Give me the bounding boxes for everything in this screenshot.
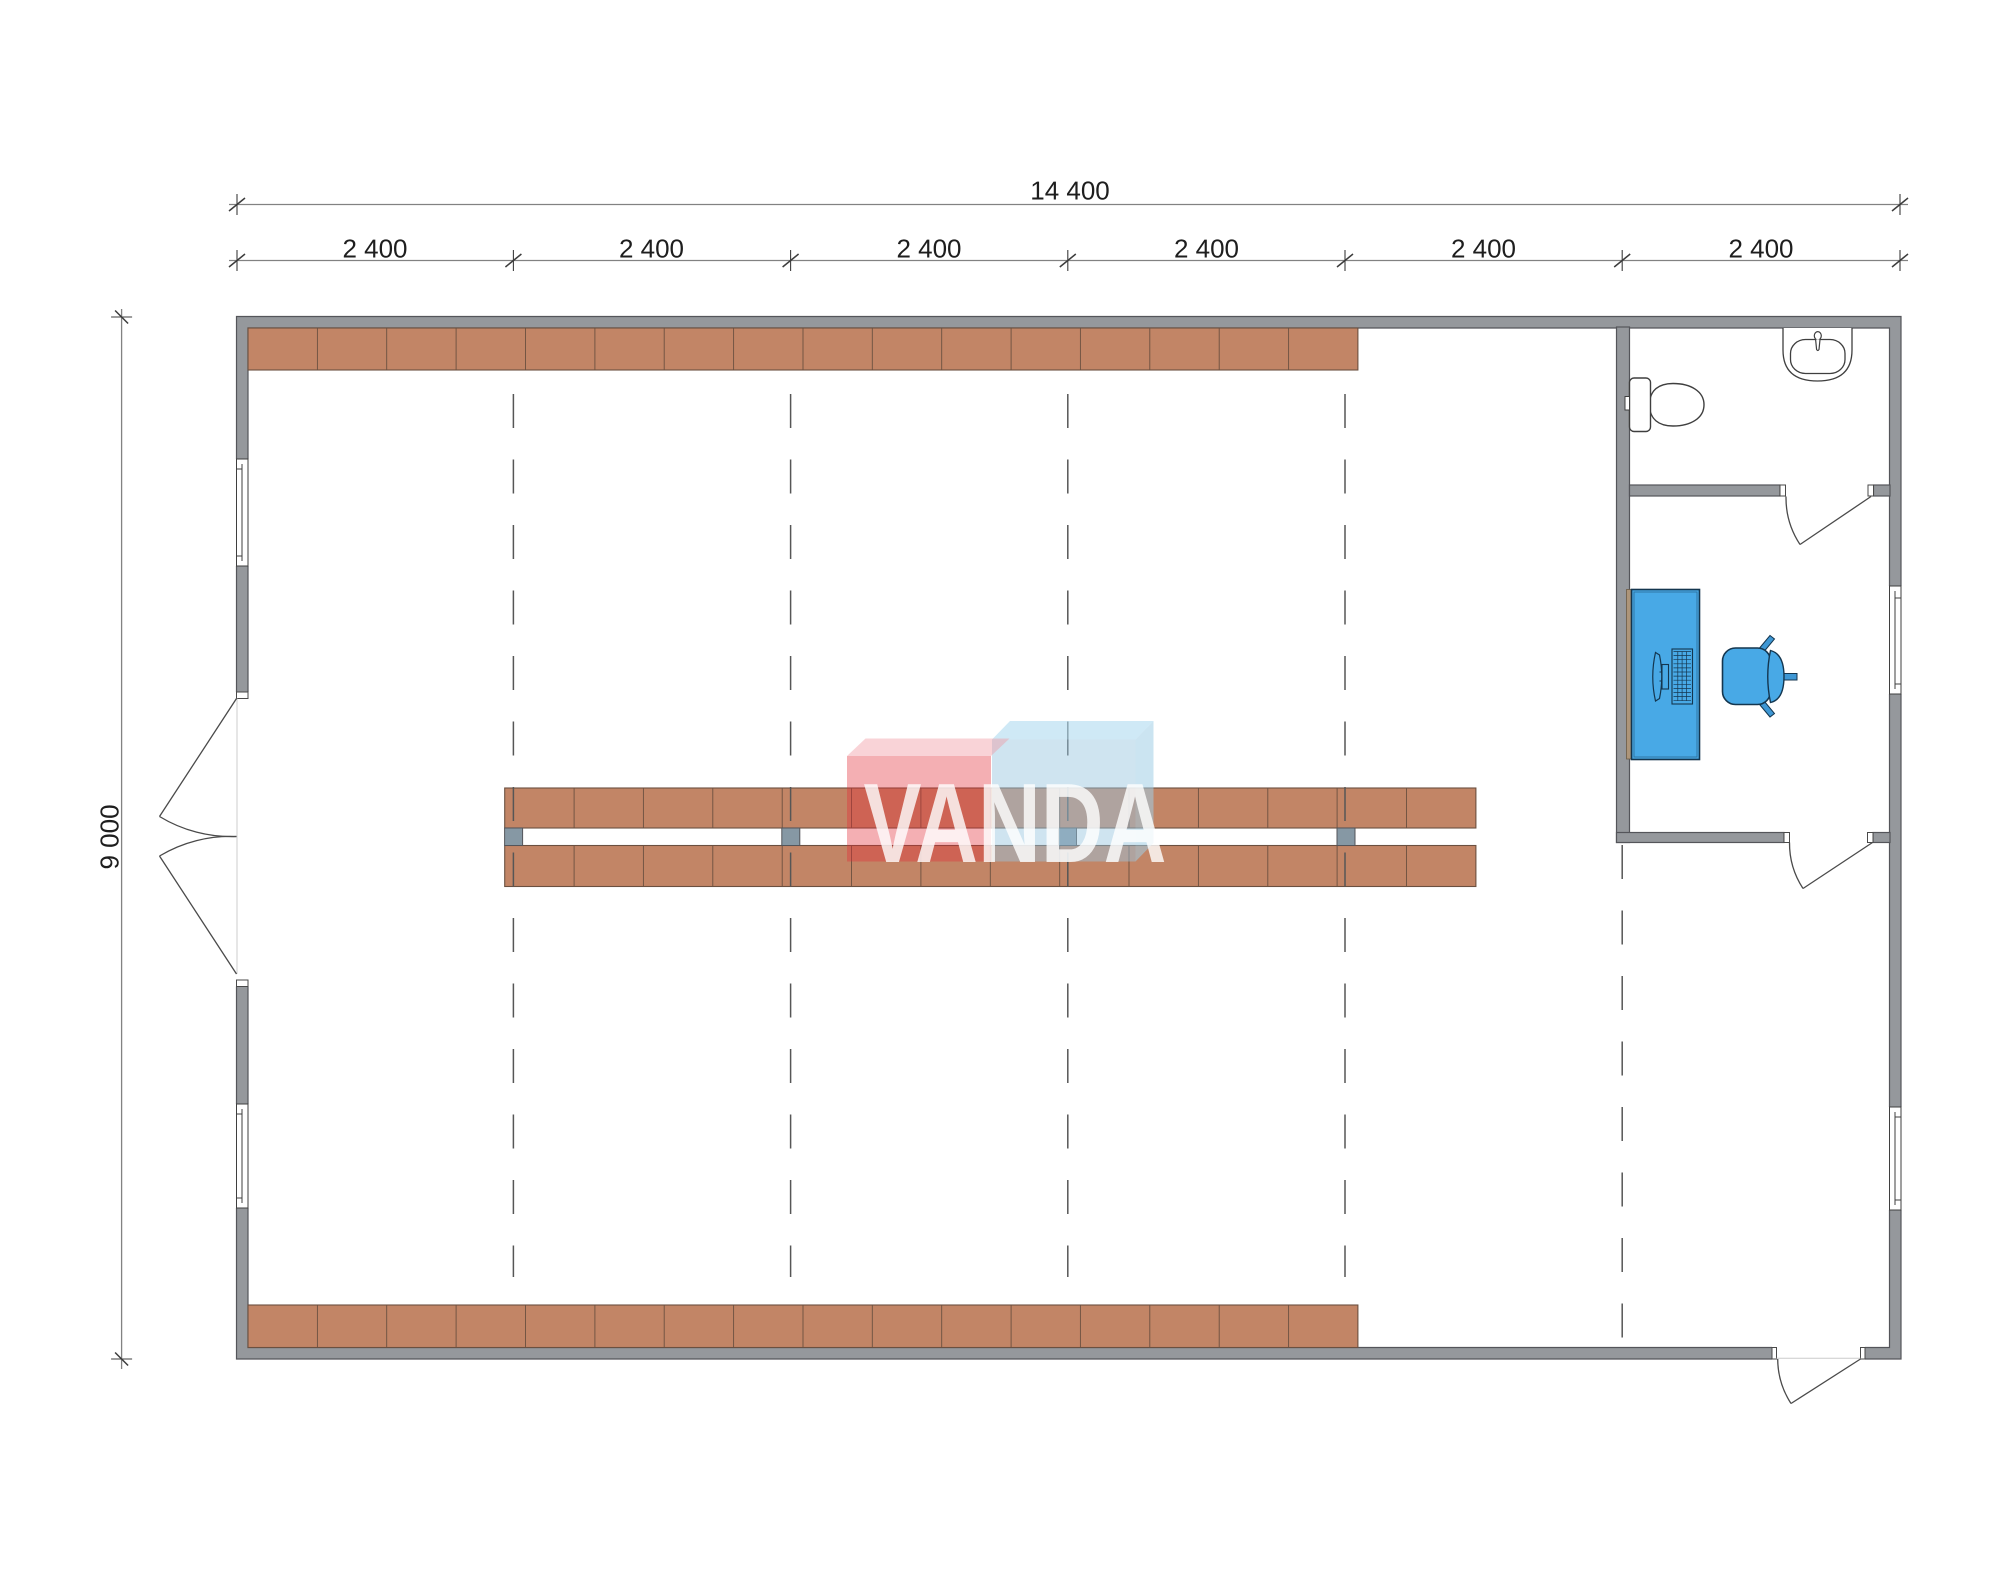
svg-text:2 400: 2 400	[342, 234, 407, 264]
svg-text:2 400: 2 400	[1174, 234, 1239, 264]
svg-text:2 400: 2 400	[619, 234, 684, 264]
svg-text:9 000: 9 000	[95, 804, 125, 869]
svg-text:2 400: 2 400	[1451, 234, 1516, 264]
svg-text:2 400: 2 400	[896, 234, 961, 264]
svg-text:VANDA: VANDA	[864, 760, 1167, 886]
svg-text:14 400: 14 400	[1030, 176, 1110, 206]
svg-text:2 400: 2 400	[1728, 234, 1793, 264]
